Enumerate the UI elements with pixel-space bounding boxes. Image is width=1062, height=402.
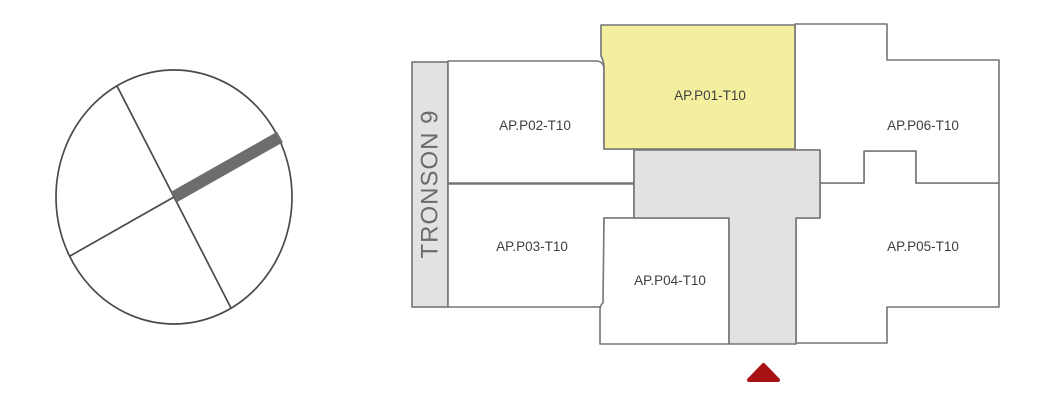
site-orientation-compass — [56, 70, 292, 324]
apartment-ap-p01-t10-highlighted[interactable] — [601, 25, 795, 149]
floor-plan-canvas: TRONSON 9 AP.P01-T10 AP.P02-T10 AP.P03-T… — [0, 0, 1062, 402]
section-label: TRONSON 9 — [417, 109, 444, 258]
apartment-ap-p04-t10[interactable] — [600, 218, 729, 344]
compass-wing-highlight — [174, 137, 280, 197]
compass-cross-line-2 — [70, 197, 174, 256]
floor-plan-page: TRONSON 9 AP.P01-T10 AP.P02-T10 AP.P03-T… — [0, 0, 1062, 402]
view-direction-marker-icon — [749, 365, 778, 380]
